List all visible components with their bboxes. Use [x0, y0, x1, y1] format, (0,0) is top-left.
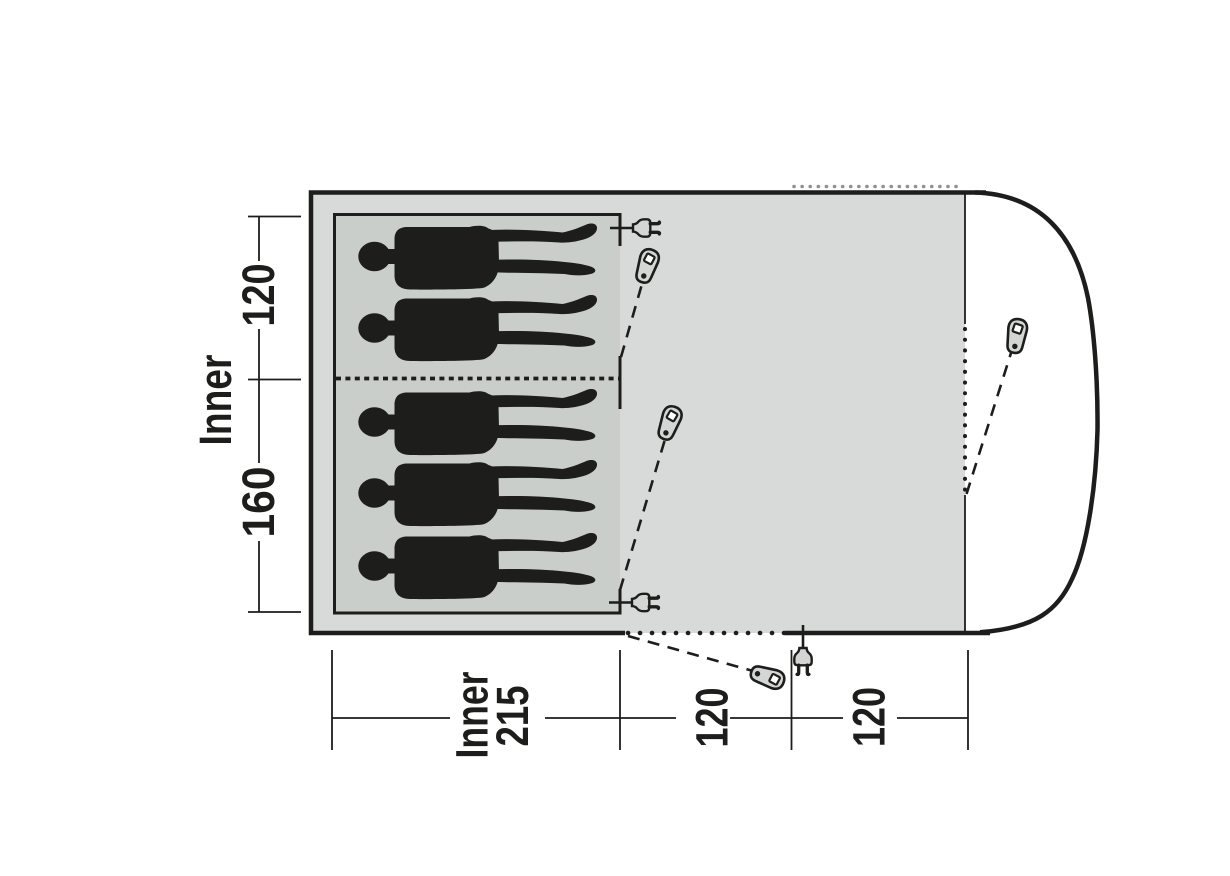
svg-text:Inner: Inner [190, 355, 241, 446]
svg-text:215: 215 [487, 686, 538, 747]
svg-text:120: 120 [233, 264, 284, 327]
svg-text:160: 160 [233, 467, 284, 538]
svg-text:120: 120 [687, 688, 738, 748]
svg-text:120: 120 [844, 687, 895, 747]
